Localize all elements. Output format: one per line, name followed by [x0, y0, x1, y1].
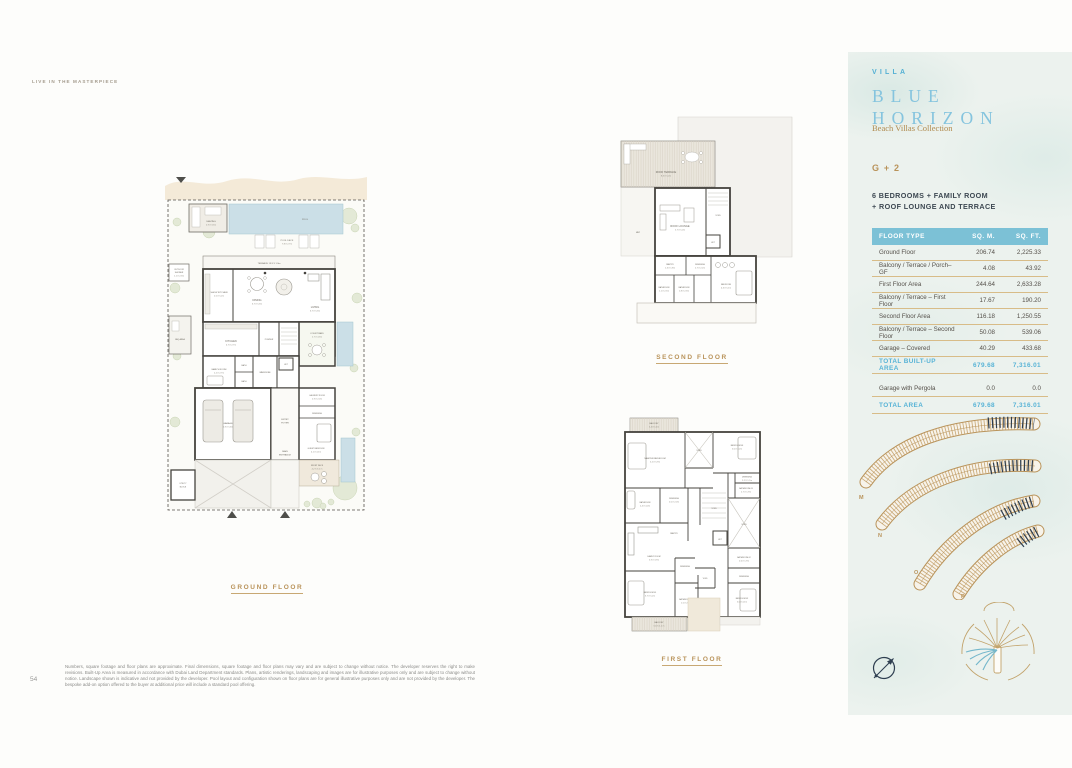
second-floor-caption: SECOND FLOOR [622, 346, 762, 364]
utility-block: UTILITY BLOCK [171, 470, 195, 500]
header-sqft: SQ. FT. [995, 233, 1048, 240]
room-label-balcony-top: BALCONY [649, 422, 659, 425]
room-dim-seating: 2.9 X 3.5m [206, 225, 216, 227]
room-label-maids: MAID'S ROOM [212, 368, 227, 371]
room-label-sf-bedroom: BEDROOM [721, 284, 731, 286]
room-label-pool: POOL [302, 219, 309, 221]
bedroom-block: PANTRY 1.3 X 1.8m DRESSING 2.7 X 2.2m BA… [655, 256, 756, 303]
room-dim-laundry: 2.9 X 2.0m [312, 399, 322, 401]
room-label-pool-deck: POOL DECK [281, 240, 294, 242]
room-dim-living: 6.7 X 5.3m [310, 311, 320, 313]
driveway-arrow-icon [227, 511, 237, 518]
room-label-family: FAMILY ROOM [648, 555, 661, 558]
header-sqm: SQ. M. [955, 233, 995, 240]
pergola-row: Garage with Pergola 0.0 0.0 [872, 381, 1048, 397]
room-dim-sf-bathroom-a: 1.1 X 2.5m [659, 291, 669, 293]
room-dim-family: 5.9 X 3.9m [649, 560, 659, 562]
table-row: Garage – Covered 40.29 433.68 [872, 341, 1048, 357]
courtyard: COURTYARD 2.7 X 4.3m [299, 322, 335, 366]
page-number: 54 [30, 676, 37, 683]
room-label-powder: POWDER [265, 339, 274, 341]
room-label-terrace: TERRACE 13.9 X 1.9m [258, 262, 281, 265]
room-dim-sf-bedroom: 4.3 X 5.1m [721, 288, 731, 290]
room-label-master: MASTER BEDROOM [644, 457, 665, 460]
room-label-garage: GARAGE [223, 422, 233, 425]
garage: GARAGE 5.9 X 5.6m [195, 388, 271, 460]
room-dim-show-kitchen: 2.5 X 5.2m [214, 296, 224, 298]
features-line2: + ROOF LOUNGE AND TERRACE [872, 202, 996, 213]
room-label-kitchen: KITCHEN [225, 339, 237, 343]
room-label-roof-terrace: ROOF TERRACE [656, 170, 677, 174]
compass-icon [870, 654, 898, 682]
room-label-dining: DINING [252, 298, 261, 302]
palm-island-icon [952, 602, 1044, 688]
room-label-sf-bathroom-a: BATHROOM [659, 286, 670, 289]
room-dim-bathroom-m: 2.4 X 4.0m [640, 505, 650, 507]
palm-fronds-gold [969, 618, 1028, 648]
room-label-guest-bedroom: GUEST BEDROOM [308, 448, 325, 450]
villa-name-line1: BLUE [872, 85, 1000, 107]
frond-label-o: O [914, 570, 919, 576]
room-label-bedroom03: BEDROOM 03 [731, 445, 743, 447]
room-dim-dressing03: 2.2 X 1.7m [742, 480, 752, 482]
room-dim-dressing-m: 2.0 X 2.0m [669, 501, 679, 503]
room-dim-front-deck: 4.2 X 3.1 m [312, 469, 323, 471]
outdoor-shower: OUTDOOR SHOWER 1.1 X 2.3m [169, 264, 189, 281]
room-label-bbq: BBQ AREA [175, 338, 185, 341]
header-floor-type: FLOOR TYPE [872, 233, 955, 240]
room-label-bedroom02: BEDROOM 02 [736, 598, 748, 600]
room-dim-bedroom02: 5.0 X 4.1m [737, 602, 747, 604]
room-label-sf-dressing: DRESSING [695, 264, 705, 266]
room-label-courtyard: COURTYARD [310, 332, 324, 335]
room-label-balcony-bottom: BALCONY [654, 621, 664, 624]
table-header-row: FLOOR TYPE SQ. M. SQ. FT. [872, 228, 1048, 245]
room-dim-kitchen: 4.7 X 2.7m [226, 345, 236, 347]
beach-strip [165, 177, 367, 200]
frond-label-p: P [961, 594, 965, 600]
ground-floor-caption: GROUND FLOOR [197, 576, 337, 594]
villa-info-panel: VILLA BLUE HORIZON Beach Villas Collecti… [848, 52, 1072, 715]
room-label-bath-b: BATH [242, 380, 248, 383]
room-label-void-top: VOID [696, 450, 702, 452]
living-block: SHOW KITCHEN 2.5 X 5.2m DINING 6.7 X 5.3… [203, 269, 335, 322]
room-label-bedroom01: BEDROOM 01 [644, 592, 656, 594]
room-dim-courtyard: 2.7 X 4.3m [312, 337, 322, 339]
porch-area [688, 598, 720, 631]
room-label-bathroom02: BATHROOM 02 [737, 556, 750, 559]
entry-foyer: ENTRY FOYER MAIN ENTRANCE [271, 388, 299, 460]
room-dim-guest-bedroom: 4.1 X 4.1m [311, 452, 321, 454]
room-label-dressing-m: DRESSING [669, 498, 679, 500]
collection-subtitle: Beach Villas Collection [872, 123, 953, 133]
lower-terrace-outline [637, 303, 756, 323]
room-dim-bathroom03: 2.7 X 1.9m [741, 491, 751, 493]
room-dim-roof-lounge: 5.7 X 5.0m [675, 230, 685, 232]
room-label-entry-1: ENTRY [281, 419, 289, 421]
roof-terrace: ROOF TERRACE 8.3 X 5.2m [621, 141, 715, 187]
first-floor-caption: FIRST FLOOR [622, 648, 762, 666]
room-label-laundry: LAUNDRY ROOM [309, 394, 325, 397]
room-label-dressing01: DRESSING [680, 566, 690, 568]
room-dim-maids: 2.2 X 2.7m [214, 373, 224, 375]
room-label-dressing02: DRESSING [739, 576, 749, 578]
room-label-outdoor-shower-2: SHOWER [175, 272, 184, 274]
frond-label-m: M [859, 495, 864, 501]
table-row: Balcony / Terrace / Porch– GF 4.08 43.92 [872, 261, 1048, 277]
room-label-utility-2: BLOCK [180, 487, 187, 489]
room-label-utility-1: UTILITY [179, 483, 187, 485]
table-row: First Floor Area 244.64 2,633.28 [872, 277, 1048, 293]
room-dim-sf-bathroom-b: 1.8 X 2.3m [679, 291, 689, 293]
room-dim-bedroom03: 5.0 X 4.2m [732, 449, 742, 451]
room-dim-dining: 6.7 X 5.3m [252, 304, 262, 306]
frond-location-map: M N O P [848, 400, 1072, 600]
guest-wing: LAUNDRY ROOM 2.9 X 2.0m DRESSING GUEST B… [299, 388, 335, 460]
water-feature-entry [341, 438, 355, 482]
table-row: Ground Floor 206.74 2,225.33 [872, 245, 1048, 261]
room-label-sf-pantry: PANTRY [666, 263, 674, 266]
room-label-main-entrance-1: MAIN [282, 450, 288, 453]
room-label-void-right: VOID [741, 524, 747, 526]
room-label-living: LIVING [311, 305, 320, 309]
room-label-main-entrance-2: ENTRANCE [279, 454, 292, 457]
configuration-label: G + 2 [872, 163, 900, 173]
frond-p [959, 531, 1038, 594]
room-label-bath-a: BATH [242, 364, 248, 367]
palm-fronds-blue [966, 649, 997, 670]
villa-eyebrow: VILLA [872, 69, 908, 76]
service-row: MAID'S ROOM 2.2 X 2.7m BATH BATH WARDROB… [203, 356, 299, 388]
table-spacer [872, 374, 1048, 381]
pool: POOL [229, 204, 343, 234]
roof-lounge-block: ROOF LOUNGE 5.7 X 5.0m VOID LIFT [655, 188, 730, 256]
room-label-seating: SEATING [206, 220, 216, 223]
room-dim-pool-deck: 7.8 X 2.7m [282, 244, 292, 246]
room-dim-bedroom01: 3.7 X 5.2m [645, 596, 655, 598]
room-label-sf-bathroom-b: BATHROOM [679, 286, 690, 289]
table-row: Second Floor Area 116.18 1,250.55 [872, 309, 1048, 325]
second-floor-plan: MEP ROOF TERRACE 8.3 X 5.2m ROOF LOUNGE … [614, 113, 794, 341]
terrace: TERRACE 13.9 X 1.9m [203, 256, 335, 269]
room-dim-garage: 5.9 X 5.6m [223, 427, 233, 429]
total-built-up-row: TOTAL BUILT-UP AREA 679.68 7,316.01 [872, 357, 1048, 374]
room-dim-master: 5.2 X 5.9m [650, 462, 660, 464]
room-label-mep: MEP [636, 232, 641, 234]
room-label-show-kitchen: SHOW KITCHEN [210, 292, 227, 294]
room-dim-balcony-bottom: 5.6 X 1.1 m [654, 626, 665, 628]
balcony-bottom: BALCONY 5.6 X 1.1 m [632, 617, 687, 631]
room-dim-balcony-top: 5.4 X 1.4m [649, 427, 659, 429]
bbq-area: BBQ AREA [169, 316, 191, 354]
masterpiece-tagline: LIVE IN THE MASTERPIECE [32, 79, 118, 84]
room-label-sf-void: VOID [715, 215, 721, 217]
room-label-wardrobe: WARDROBE [259, 371, 271, 374]
room-label-ff-pantry: PANTRY [670, 532, 678, 535]
room-dim-outdoor-shower: 1.1 X 2.3m [174, 276, 184, 278]
room-label-bathroom-m: BATHROOM [640, 501, 651, 504]
front-deck: FRONT DECK 4.2 X 3.1 m [299, 460, 339, 486]
table-row: Balcony / Terrace – Second Floor 50.08 5… [872, 325, 1048, 341]
water-feature-right [337, 322, 353, 366]
room-label-bathroom03: BATHROOM 03 [739, 487, 752, 490]
frond-label-n: N [878, 533, 882, 539]
room-dim-sf-pantry: 1.3 X 1.8m [665, 268, 675, 270]
room-dim-bathroom02: 2.6 X 1.9m [739, 560, 749, 562]
first-floor-plan: BALCONY 5.4 X 1.4m MASTER BEDROOM [620, 413, 792, 645]
room-label-gf-dressing: DRESSING [312, 413, 322, 415]
room-label-roof-lounge: ROOF LOUNGE [670, 224, 689, 228]
entrance-arrow-icon [280, 511, 290, 518]
room-label-front-deck: FRONT DECK [311, 465, 324, 467]
steps-right [720, 617, 760, 625]
seating-pavilion: SEATING 2.9 X 3.5m [189, 204, 227, 232]
features-line1: 6 BEDROOMS + FAMILY ROOM [872, 191, 996, 202]
room-label-void-center: VOID [711, 508, 717, 510]
room-label-outdoor-shower-1: OUTDOOR [174, 269, 184, 271]
lift-box [713, 531, 727, 545]
legal-disclaimer: Numbers, square footage and floor plans … [65, 664, 475, 688]
room-dim-sf-dressing: 2.7 X 2.2m [695, 268, 705, 270]
ground-floor-plan: POOL SEATING 2.9 X 3.5m POOL DECK 7.8 X … [165, 170, 367, 522]
room-label-dressing03: DRESSING [742, 477, 752, 479]
mep-area [621, 187, 655, 256]
features-text: 6 BEDROOMS + FAMILY ROOM + ROOF LOUNGE A… [872, 191, 996, 212]
table-row: Balcony / Terrace – First Floor 17.67 19… [872, 293, 1048, 309]
balcony-top: BALCONY 5.4 X 1.4m [630, 418, 678, 432]
room-dim-roof-terrace: 8.3 X 5.2m [661, 176, 671, 178]
area-table: FLOOR TYPE SQ. M. SQ. FT. Ground Floor 2… [872, 228, 1048, 414]
room-label-void-small: VOID [703, 578, 708, 580]
room-label-entry-2: FOYER [281, 423, 289, 425]
